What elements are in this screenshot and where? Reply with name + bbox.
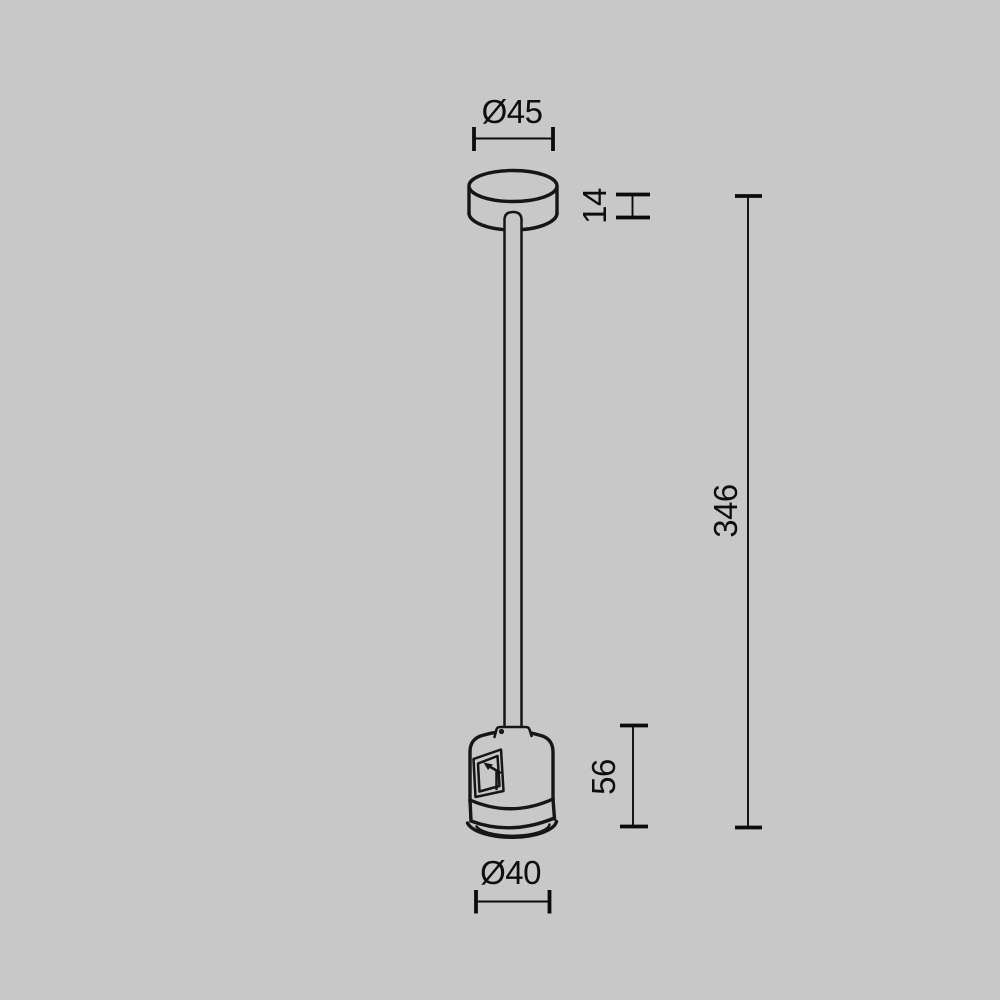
dim-canopy-height-label: 14 [576,188,613,224]
dim-canopy-diameter-label: Ø45 [482,93,543,130]
canopy-top-ellipse [469,171,557,202]
dim-connector-diameter-label: Ø40 [480,854,541,891]
rod-fill [505,212,522,727]
dim-overall-length-label: 346 [707,484,744,538]
technical-drawing-page: Ø45 14 346 56 Ø40 [0,0,1000,1000]
pendant-mount-drawing: Ø45 14 346 56 Ø40 [0,0,1000,1000]
connector-flange-right [553,799,555,819]
latch-window [474,750,504,798]
dim-overall-length: 346 [707,196,762,828]
dim-connector-height-label: 56 [585,759,622,795]
connector-flange-left [470,800,471,821]
connector-joint-arc [470,799,553,809]
dim-connector-diameter: Ø40 [476,854,550,914]
connector-rim-top-arc [471,818,555,828]
track-connector [468,727,557,837]
dim-canopy-diameter: Ø45 [474,93,553,151]
collar-set-screw [499,729,504,734]
dim-connector-height: 56 [585,726,648,827]
dim-canopy-height: 14 [576,188,650,224]
suspension-rod [505,212,522,727]
